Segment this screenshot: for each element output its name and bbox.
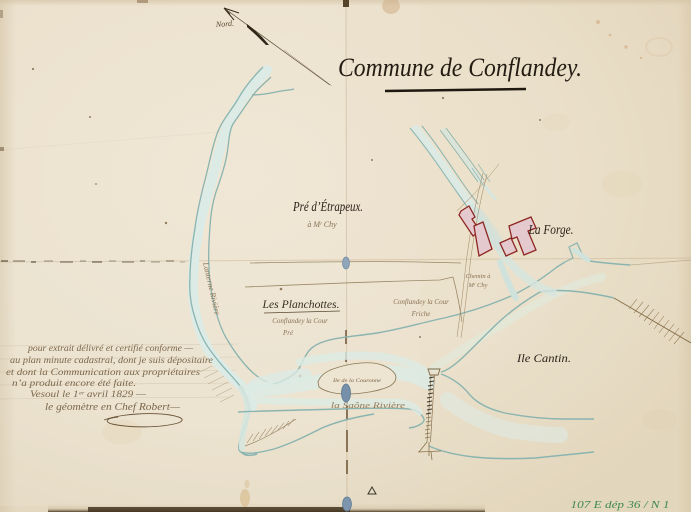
svg-text:Nord.: Nord. bbox=[215, 19, 235, 29]
svg-text:au plan minute cadastral, dont: au plan minute cadastral, dont je suis d… bbox=[10, 355, 213, 365]
svg-text:n’a produit encore été faite.: n’a produit encore été faite. bbox=[12, 378, 136, 388]
svg-text:pour extrait délivré et certif: pour extrait délivré et certifié conform… bbox=[27, 343, 194, 353]
svg-text:et dont la Communication aux p: et dont la Communication aux propriétair… bbox=[6, 367, 201, 377]
svg-text:Pré d’Étrapeux.: Pré d’Étrapeux. bbox=[292, 198, 363, 215]
svg-text:Pré: Pré bbox=[282, 329, 294, 337]
svg-text:La Forge.: La Forge. bbox=[528, 222, 574, 237]
svg-text:Conflandey la Cour: Conflandey la Cour bbox=[393, 298, 449, 306]
svg-text:Vesoul le 1ᵉʳ avril 1829 —: Vesoul le 1ᵉʳ avril 1829 — bbox=[30, 389, 147, 399]
svg-text:Chemin à: Chemin à bbox=[465, 273, 490, 280]
svg-text:le géomètre en Chef Robert—: le géomètre en Chef Robert— bbox=[45, 402, 180, 413]
svg-text:Friche: Friche bbox=[411, 310, 431, 318]
svg-text:Les Planchottes.: Les Planchottes. bbox=[262, 297, 340, 311]
svg-text:la Saône Rivière: la Saône Rivière bbox=[331, 400, 405, 410]
svg-text:Mʳ Chy: Mʳ Chy bbox=[468, 282, 488, 289]
svg-text:Conflandey la Cour: Conflandey la Cour bbox=[272, 317, 328, 325]
svg-text:Ile Cantin.: Ile Cantin. bbox=[516, 351, 571, 365]
svg-text:à Mʳ Chy: à Mʳ Chy bbox=[307, 220, 337, 229]
svg-text:107 E dép 36 / N 1: 107 E dép 36 / N 1 bbox=[571, 500, 670, 511]
svg-text:Ile de la Couronne: Ile de la Couronne bbox=[332, 379, 382, 384]
svg-text:Commune de Conflandey.: Commune de Conflandey. bbox=[338, 53, 582, 82]
